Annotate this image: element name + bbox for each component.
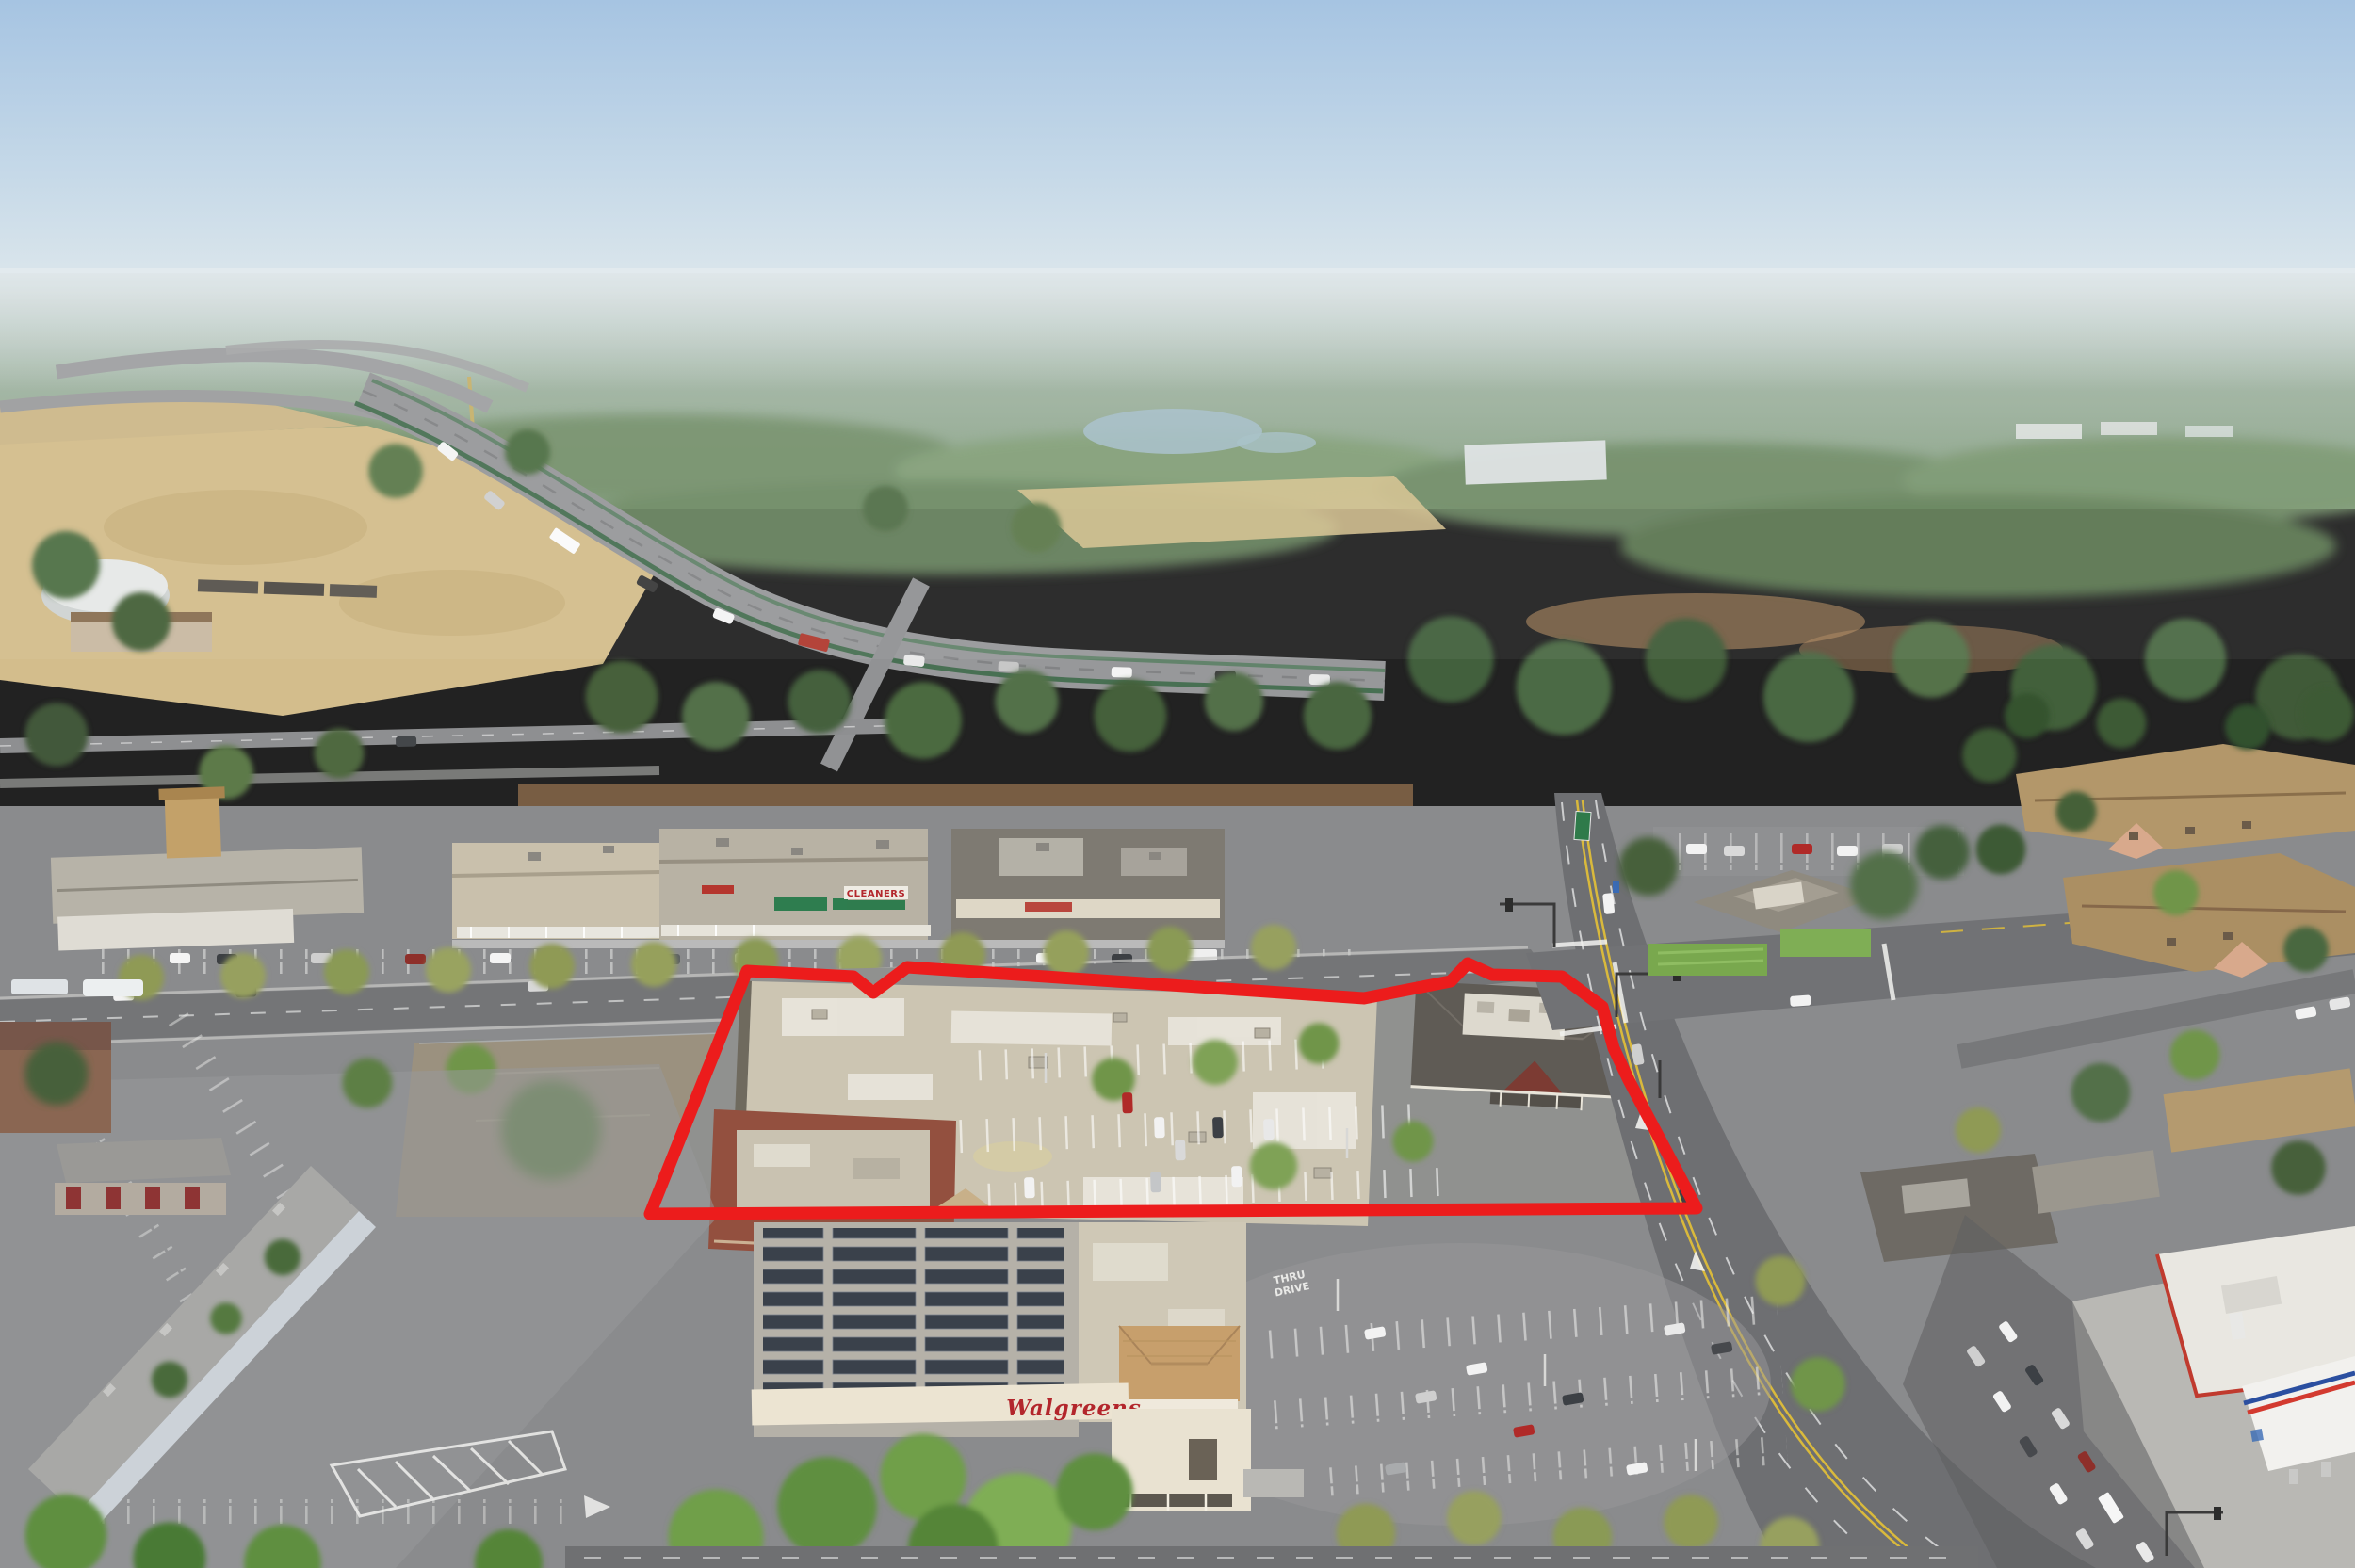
- mall-building-a: [452, 843, 659, 939]
- portable-toilet: [1613, 881, 1619, 893]
- atmosphere: [0, 283, 2355, 659]
- shuttle-bus: [11, 979, 68, 994]
- aerial-photo: CLEANERS: [0, 0, 2355, 1568]
- white-rv: [83, 979, 143, 996]
- entry-awning: [1117, 1494, 1232, 1507]
- frontage-road: [0, 725, 923, 784]
- sky: [0, 0, 2355, 292]
- green-awning: [774, 897, 827, 911]
- cleaners-sign: CLEANERS: [847, 889, 905, 899]
- colonnade: [457, 927, 659, 938]
- cleaners-awning: [847, 900, 905, 910]
- cleaners-storefront: CLEANERS: [844, 886, 908, 910]
- solar-panel-array: [763, 1228, 1064, 1407]
- storefront-sign-red: [702, 885, 734, 894]
- mall-building-c: [951, 829, 1225, 940]
- highway-sign-green: [1574, 811, 1591, 840]
- bottom-street: [565, 1546, 1978, 1568]
